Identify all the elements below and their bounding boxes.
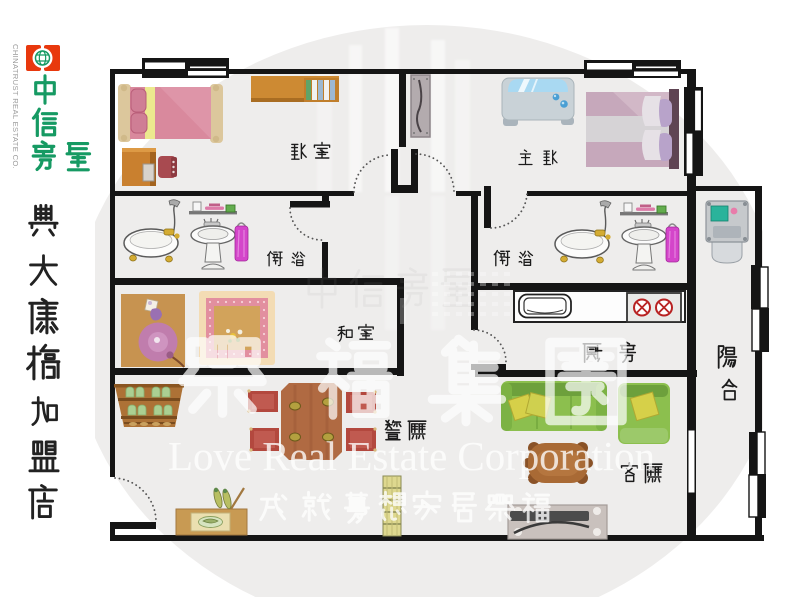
- svg-text:CHINATRUST REAL ESTATE CO.: CHINATRUST REAL ESTATE CO.: [11, 44, 20, 169]
- svg-text:Love Real Estate Corporation: Love Real Estate Corporation: [168, 433, 655, 479]
